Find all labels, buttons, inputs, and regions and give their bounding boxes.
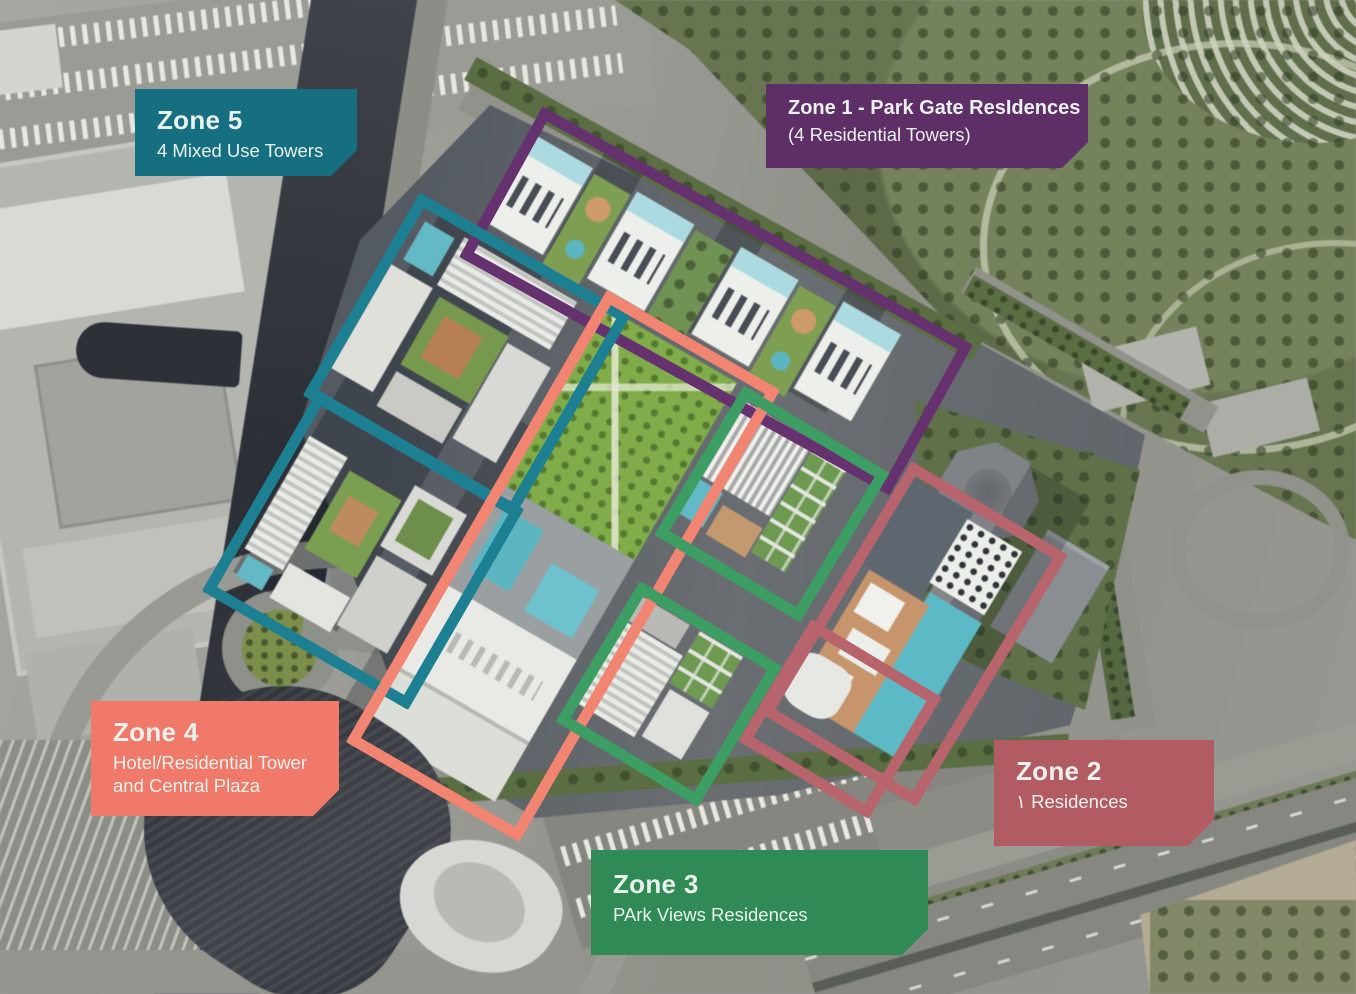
warehouse-roof (0, 24, 63, 99)
corner-trees (1150, 900, 1356, 994)
zone-1-label: Zone 1 - Park Gate ResIdences (4 Residen… (766, 84, 1088, 168)
zone-5-label-title: Zone 5 (157, 104, 339, 137)
zone-3-label-subtitle: PArk Views Residences (613, 903, 910, 927)
zone-5-label-subtitle: 4 Mixed Use Towers (157, 139, 339, 163)
zone-2-label: Zone 2 ١ Residences (994, 740, 1214, 846)
podium-inner (419, 846, 539, 958)
zone-3-label: Zone 3 PArk Views Residences (591, 850, 928, 955)
zone-1-label-title: Zone 1 - Park Gate ResIdences (788, 96, 1070, 121)
tower-with-shadow (74, 320, 243, 387)
zone-2-label-title: Zone 2 (1016, 755, 1196, 788)
rooftop-slab (0, 173, 245, 331)
zone-2-label-subtitle: ١ Residences (1016, 790, 1196, 814)
zone-3-label-title: Zone 3 (613, 868, 910, 901)
masterplan-aerial-map: Zone 5 4 Mixed Use Towers Zone 1 - Park … (0, 0, 1356, 994)
zone-4-label: Zone 4 Hotel/Residential Tower and Centr… (91, 701, 339, 816)
zone-1-label-subtitle: (4 Residential Towers) (788, 123, 1070, 147)
zone-4-label-title: Zone 4 (113, 716, 321, 749)
road-loop-east (1170, 470, 1350, 630)
zone-4-label-subtitle: Hotel/Residential Tower and Central Plaz… (113, 751, 321, 798)
zone-5-label: Zone 5 4 Mixed Use Towers (135, 89, 357, 176)
